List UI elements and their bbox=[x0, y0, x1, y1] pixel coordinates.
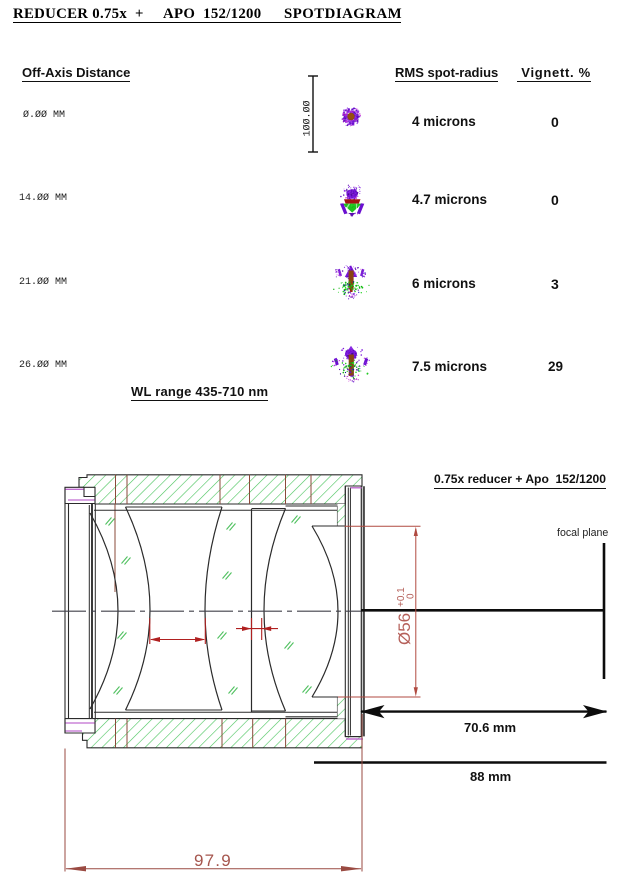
svg-text:Ø56: Ø56 bbox=[395, 613, 414, 645]
svg-text:0: 0 bbox=[406, 593, 417, 599]
